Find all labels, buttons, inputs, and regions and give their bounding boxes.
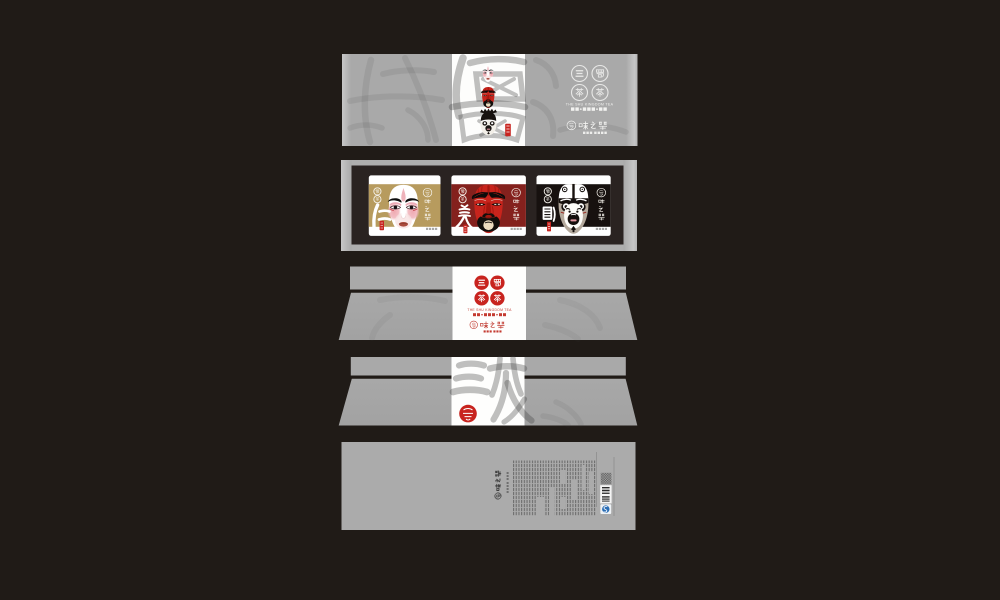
svg-text:THE SHU KINGDOM TEA: THE SHU KINGDOM TEA [467, 308, 512, 312]
svg-text:THE SHU KINGDOM TEA: THE SHU KINGDOM TEA [566, 103, 614, 107]
